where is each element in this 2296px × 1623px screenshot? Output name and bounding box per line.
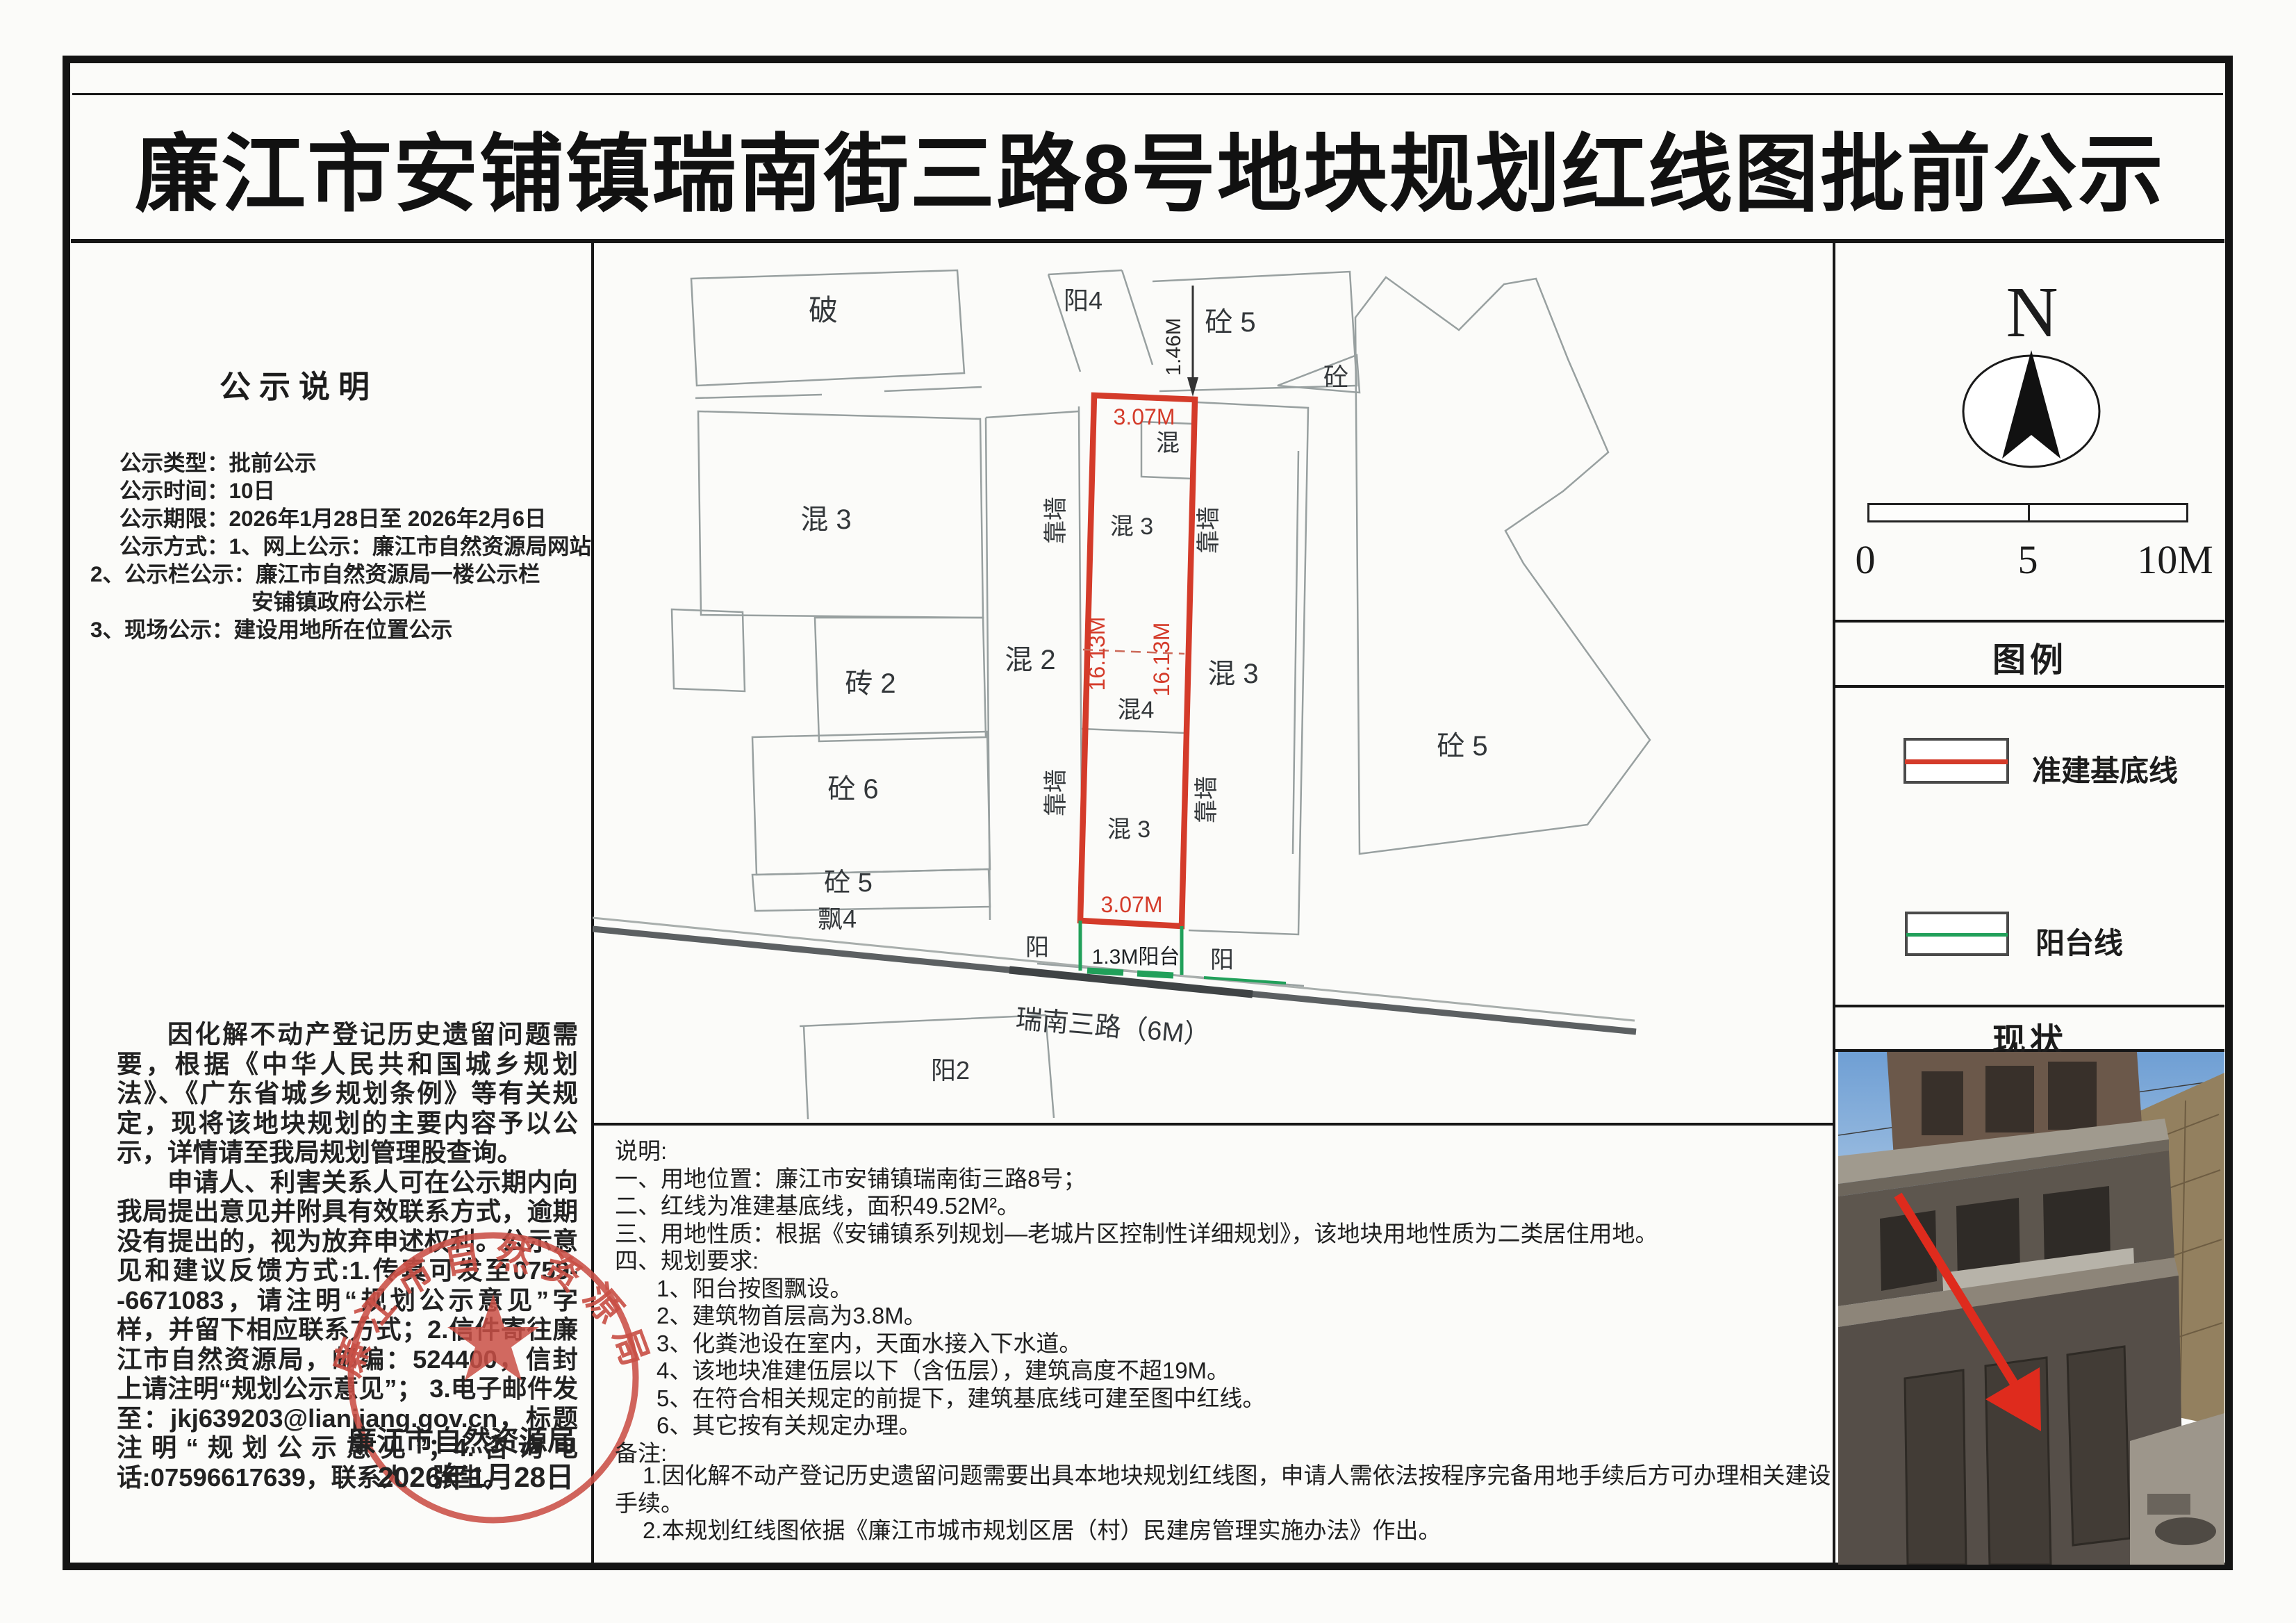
rule-below-legend-header — [1835, 685, 2224, 688]
map-label-hun4: 混4 — [1118, 697, 1155, 723]
legend-label-green: 阳台线 — [2035, 920, 2123, 962]
status-photo — [1838, 1052, 2224, 1565]
scale-tick-5: 5 — [2004, 536, 2052, 583]
top-inner-rule — [72, 93, 2223, 95]
map-label-piao4: 飘4 — [818, 905, 857, 933]
notice-method-line-4: 3、现场公示：建设用地所在位置公示 — [90, 612, 453, 644]
page-title: 廉江市安铺镇瑞南街三路8号地块规划红线图批前公示 — [83, 106, 2216, 229]
dimension-arrow-icon — [1187, 377, 1198, 397]
map-label-tong5-right: 砼 5 — [1437, 731, 1487, 761]
map-label-tong6: 砼 6 — [827, 774, 878, 805]
scale-bar-mid-tick — [2028, 505, 2030, 520]
divider-right-panel — [1833, 243, 1835, 1565]
road-dark-segment — [1009, 970, 1253, 994]
scale-tick-0: 0 — [1841, 536, 1890, 583]
map-label-kaoqiang-ur: 靠墙 — [1196, 506, 1222, 554]
map-label-yang4: 阳4 — [1064, 286, 1102, 315]
map-label-hun3-right: 混 3 — [1207, 659, 1258, 689]
map-label-yang-right: 阳 — [1210, 947, 1234, 973]
remark-1: 1.因化解不动产登记历史遗留问题需要出具本地块规划红线图，申请人需依法按程序完备… — [615, 1462, 1837, 1517]
map-dim-307-top: 3.07M — [1114, 404, 1175, 429]
map-label-tong: 砼 — [1323, 363, 1348, 391]
legend-header: 图例 — [1835, 632, 2224, 681]
map-label-hun3-plot-lower: 混 3 — [1107, 816, 1150, 843]
left-panel-heading: 公示说明 — [104, 361, 493, 406]
map-label-hun2: 混 2 — [1005, 645, 1055, 675]
map-label-kaoqiang-ll: 靠墙 — [1043, 769, 1069, 816]
legend-item-red — [1903, 738, 2009, 784]
map-label-balcony: 1.3M阳台 — [1092, 946, 1180, 969]
notice-page: 廉江市安铺镇瑞南街三路8号地块规划红线图批前公示 公示说明 公示类型：批前公示 … — [0, 0, 2296, 1623]
map-label-hun3-left: 混 3 — [800, 504, 851, 535]
rule-above-status-header — [1835, 1005, 2224, 1007]
map-dim-146: 1.46M — [1162, 318, 1185, 375]
scale-bar — [1867, 503, 2188, 522]
map-label-tong5-left: 砼 5 — [824, 868, 873, 898]
map-label-road: 瑞南三路（6M） — [1014, 1005, 1211, 1051]
note-req-6: 6、其它按有关规定办理。 — [656, 1407, 921, 1440]
map-label-yang2: 阳2 — [931, 1056, 970, 1085]
legend-red-line — [1905, 759, 2008, 764]
legend-green-line — [1906, 933, 2008, 937]
remark-2: 2.本规划红线图依据《廉江市城市规划区居（村）民建房管理实施办法》作出。 — [615, 1517, 1837, 1544]
map-label-hun-small: 混 — [1156, 430, 1180, 456]
site-plan-map: 破 阳4 砼 5 砼 1.46M 混 3 砖 2 混 2 砼 6 砼 5 飘4 … — [593, 242, 1833, 1122]
map-dim-1613-right: 16.13M — [1149, 623, 1174, 697]
scale-tick-10m: 10M — [2123, 536, 2227, 583]
map-label-yang-left: 阳 — [1025, 934, 1049, 961]
map-label-kaoqiang-ul: 靠墙 — [1043, 497, 1069, 544]
rule-above-legend-header — [1835, 620, 2224, 623]
map-dim-1613-left: 16.13M — [1084, 617, 1109, 691]
compass-icon — [1941, 325, 2122, 499]
stamp-date: 2026年1月28日 — [309, 1453, 643, 1495]
map-label-zhuan2: 砖 2 — [845, 668, 895, 699]
stamp-agency: 廉江市自然资源局 — [295, 1417, 629, 1459]
map-label-hun3-plot-upper: 混 3 — [1110, 513, 1153, 540]
seal-star-icon — [447, 1294, 539, 1381]
map-label-tong5-top: 砼 5 — [1205, 307, 1255, 338]
legend-label-red: 准建基底线 — [2032, 748, 2178, 790]
divider-map-notes — [591, 1123, 1835, 1126]
paragraph-legal-basis: 因化解不动产登记历史遗留问题需要，根据《中华人民共和国城乡规划法》、《广东省城乡… — [117, 1020, 578, 1168]
map-label-kaoqiang-lr: 靠墙 — [1194, 776, 1220, 823]
note-item-3: 三、用地性质：根据《安铺镇系列规划—老城片区控制性详细规划》，该地块用地性质为二… — [615, 1215, 1658, 1249]
map-label-po: 破 — [809, 294, 838, 327]
legend-item-green — [1905, 912, 2009, 956]
map-dim-307-bottom: 3.07M — [1101, 892, 1163, 917]
